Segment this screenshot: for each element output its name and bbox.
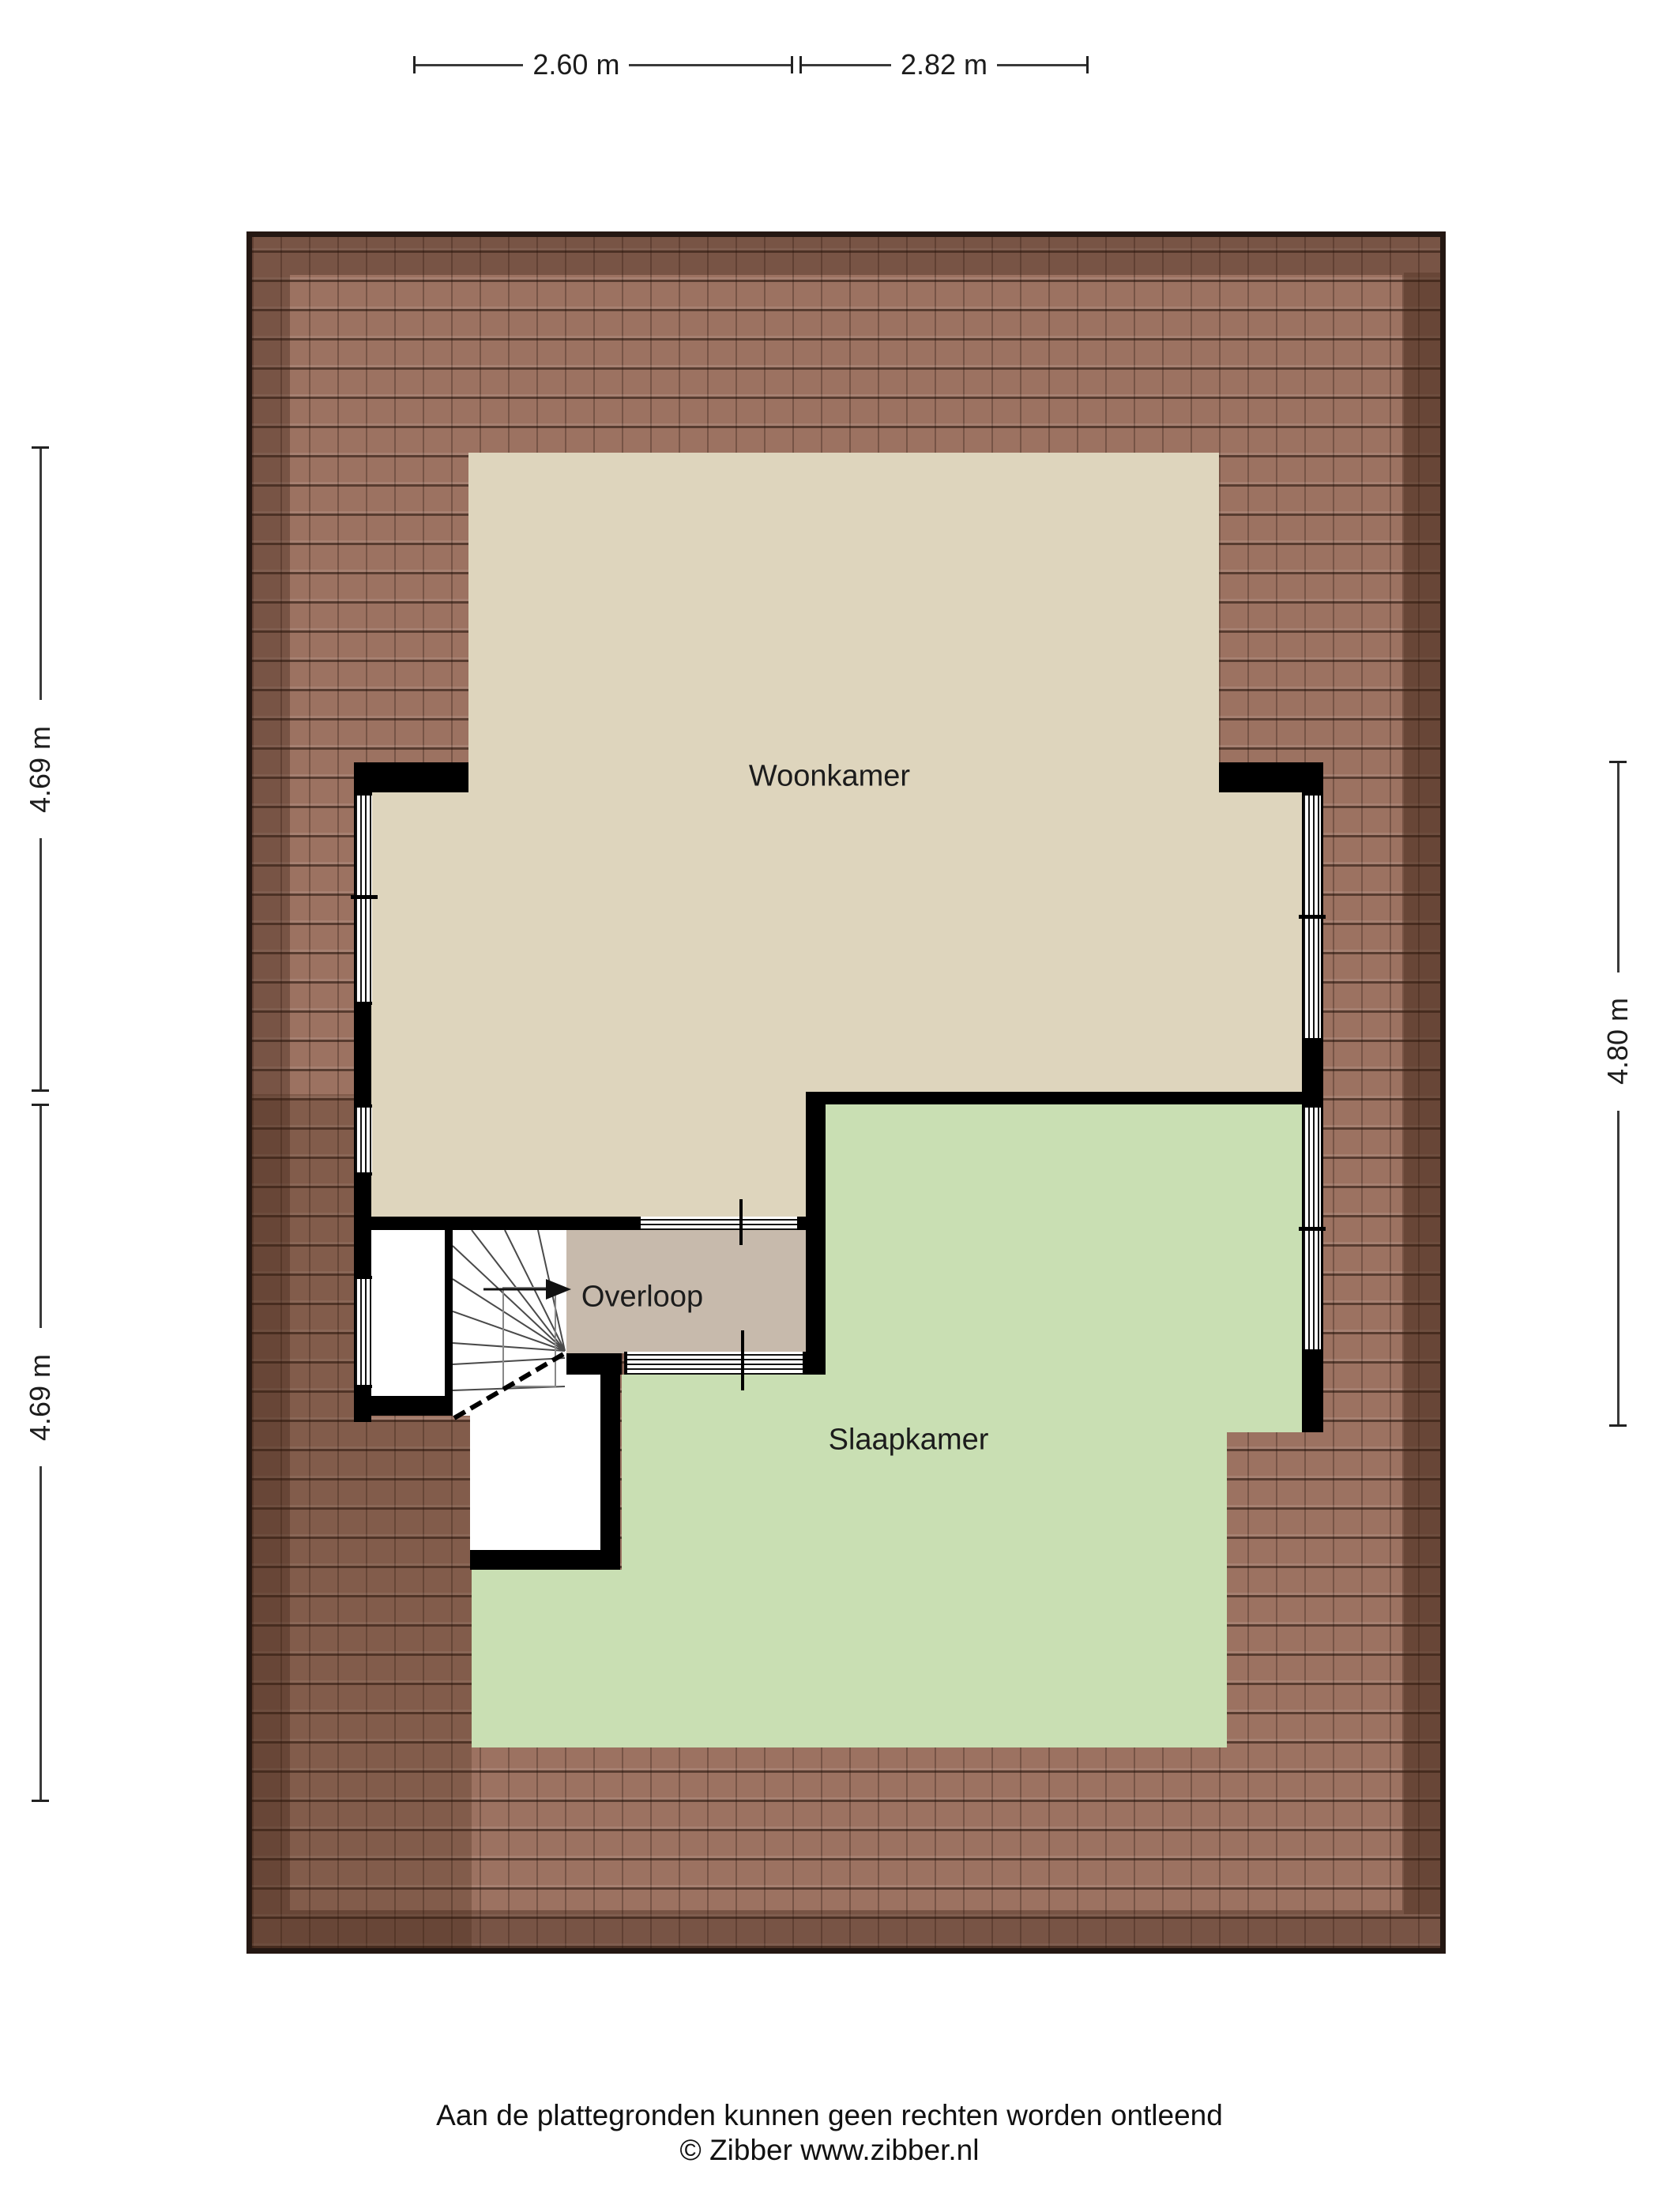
wall-stair-divider [445,1230,453,1416]
roof-shade-left [251,1094,355,1948]
room-label-overloop: Overloop [581,1281,703,1315]
dimension-top-1: 2.60 m [413,51,793,79]
dimension-label: 4.69 m [24,725,57,812]
dimension-tick [791,56,793,73]
dimension-label: 4.80 m [1601,998,1635,1085]
dimension-label: 2.60 m [523,48,629,81]
dimension-tick [1086,56,1089,73]
window-left-mid [355,1104,372,1176]
dimension-label: 2.82 m [891,48,997,81]
footer-copyright: © Zibber www.zibber.nl [0,2133,1659,2168]
window-mullion-tick [1299,1227,1326,1231]
window-center-tick [739,1199,743,1245]
wall [357,762,468,792]
stairs-direction-arrow-icon [546,1279,571,1300]
wall-storage-bottom [354,1396,453,1416]
window-overloop-top [638,1217,800,1230]
dimension-tick [32,1800,49,1802]
wall-stairs-right [600,1375,620,1570]
room-woonkamer-main [371,792,1303,1093]
footer: Aan de plattegronden kunnen geen rechten… [0,2098,1659,2168]
wall-step [806,1092,826,1375]
dimension-top-2: 2.82 m [799,51,1089,79]
dimension-right-1: 4.80 m [1604,761,1632,1427]
window-center-tick [741,1330,744,1390]
window-mullion-tick [351,895,378,899]
footer-disclaimer: Aan de plattegronden kunnen geen rechten… [0,2098,1659,2133]
room-label-woonkamer: Woonkamer [749,760,910,794]
dimension-tick [32,1089,49,1092]
dimension-left-1: 4.69 m [26,446,55,1092]
floorplan-page: Woonkamer Slaapkamer Overloop 2.60 m 2.8… [0,0,1659,2212]
room-storage [371,1230,445,1396]
room-woonkamer-lower [371,1092,806,1217]
room-label-slaapkamer: Slaapkamer [829,1424,989,1458]
window-mullion-tick [1299,915,1326,919]
dimension-left-2: 4.69 m [26,1104,55,1802]
dimension-label: 4.69 m [24,1354,57,1441]
stairs [453,1230,603,1570]
wall-slaapkamer-top [826,1092,1323,1104]
roof-shade-right [1404,273,1441,1914]
window-overloop-bottom [624,1352,806,1375]
window-left-lower [355,1276,372,1388]
dimension-tick [1609,1424,1627,1427]
room-woonkamer-dormer [468,453,1219,794]
